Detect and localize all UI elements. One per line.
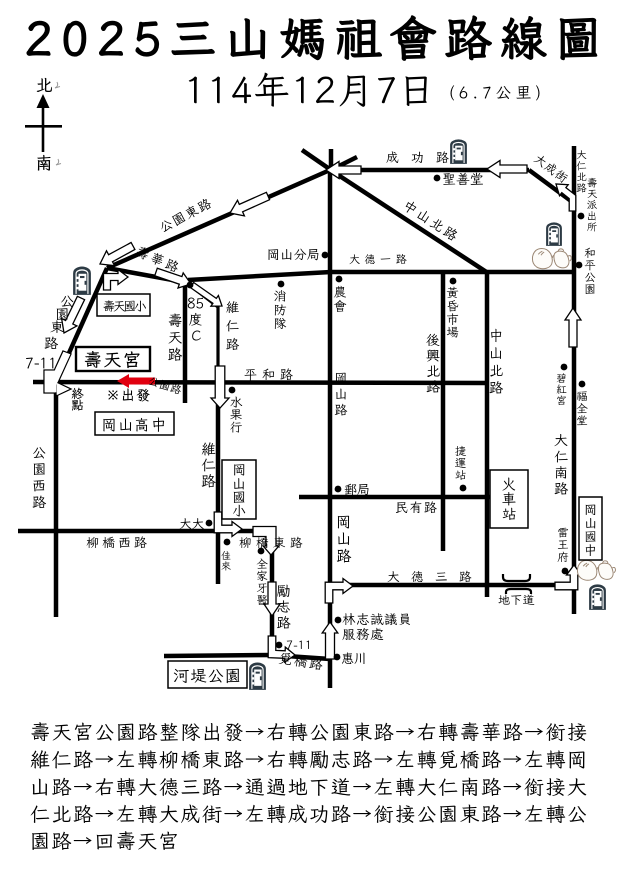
svg-text:點: 點	[71, 397, 84, 414]
svg-text:園: 園	[584, 282, 596, 297]
svg-text:仁: 仁	[226, 317, 240, 335]
svg-text:C: C	[192, 327, 202, 345]
svg-text:岡山分局: 岡山分局	[267, 246, 320, 263]
svg-text:來: 來	[221, 560, 231, 573]
svg-text:堂: 堂	[576, 414, 588, 429]
svg-text:民有路: 民有路	[395, 499, 439, 516]
svg-text:惠川: 惠川	[341, 650, 367, 667]
svg-text:所: 所	[586, 219, 598, 233]
svg-text:西: 西	[32, 477, 46, 495]
svg-text:聖善堂: 聖善堂	[442, 170, 484, 188]
svg-text:站: 站	[455, 468, 467, 483]
svg-text:壽天宮公園路整隊出發→右轉公園東路→右轉壽華路→銜接: 壽天宮公園路整隊出發→右轉公園東路→右轉壽華路→銜接	[30, 718, 587, 745]
svg-text:中: 中	[489, 327, 503, 345]
svg-text:山: 山	[334, 386, 347, 403]
svg-text:小: 小	[232, 502, 246, 520]
svg-text:路: 路	[277, 613, 291, 631]
svg-text:宮: 宮	[556, 393, 567, 407]
svg-text:柳橋西路: 柳橋西路	[86, 534, 150, 551]
svg-text:山: 山	[489, 344, 503, 362]
svg-text:路: 路	[168, 346, 183, 365]
svg-text:114年12月7日: 114年12月7日	[184, 65, 435, 114]
svg-text:北: 北	[489, 361, 503, 379]
svg-text:行: 行	[230, 419, 243, 436]
svg-text:中: 中	[584, 541, 597, 558]
svg-text:大大: 大大	[179, 515, 204, 532]
svg-text:路: 路	[226, 335, 240, 353]
svg-text:路: 路	[201, 472, 216, 491]
svg-text:壽天國小: 壽天國小	[102, 298, 147, 315]
svg-text:醫: 醫	[256, 593, 268, 608]
svg-text:站: 站	[502, 505, 517, 524]
svg-text:園: 園	[32, 460, 46, 478]
svg-text:隊: 隊	[273, 315, 286, 332]
svg-text:岡山高中: 岡山高中	[101, 416, 167, 435]
svg-text:公: 公	[32, 443, 46, 461]
svg-text:山路→右轉大德三路→通過地下道→左轉大仁南路→銜接大: 山路→右轉大德三路→通過地下道→左轉大仁南路→銜接大	[30, 773, 587, 800]
svg-text:壽天宮: 壽天宮	[84, 348, 143, 372]
svg-text:※出發: ※出發	[106, 386, 151, 404]
svg-text:(6.7公里): (6.7公里)	[449, 81, 541, 103]
svg-text:場: 場	[446, 324, 459, 341]
svg-text:河堤公園: 河堤公園	[173, 665, 242, 687]
svg-text:府: 府	[557, 550, 569, 565]
svg-text:岡: 岡	[334, 370, 347, 387]
svg-text:成功路: 成功路	[386, 149, 461, 166]
svg-text:北: 北	[36, 73, 53, 96]
svg-text:仁北路→左轉大成街→左轉成功路→銜接公園東路→左轉公: 仁北路→左轉大成街→左轉成功路→銜接公園東路→左轉公	[30, 800, 587, 827]
svg-text:服務處: 服務處	[342, 625, 384, 643]
svg-text:園路→回壽天宮: 園路→回壽天宮	[30, 827, 180, 854]
svg-text:大德一路: 大德一路	[349, 253, 411, 267]
svg-text:路: 路	[44, 334, 58, 352]
svg-text:2025三山媽祖會路線圖: 2025三山媽祖會路線圖	[25, 7, 602, 69]
svg-text:路: 路	[426, 378, 440, 396]
svg-text:地下道: 地下道	[498, 593, 535, 608]
svg-text:維仁路→左轉柳橋東路→右轉勵志路→左轉覓橋路→左轉岡: 維仁路→左轉柳橋東路→右轉勵志路→左轉覓橋路→左轉岡	[30, 746, 587, 773]
svg-text:會: 會	[333, 297, 346, 314]
svg-text:路: 路	[576, 180, 587, 194]
svg-text:郵局: 郵局	[344, 481, 370, 498]
svg-text:柳橋東路: 柳橋東路	[239, 534, 307, 551]
svg-text:路: 路	[336, 547, 351, 566]
svg-text:路: 路	[489, 379, 503, 397]
svg-text:7-11: 7-11	[25, 354, 57, 373]
svg-text:路: 路	[554, 480, 568, 498]
svg-text:維: 維	[226, 298, 240, 316]
svg-text:大德三路: 大德三路	[387, 568, 483, 585]
svg-text:路: 路	[32, 493, 46, 511]
svg-text:南: 南	[36, 151, 53, 174]
svg-text:平和路: 平和路	[244, 366, 298, 383]
svg-text:路: 路	[334, 402, 347, 419]
